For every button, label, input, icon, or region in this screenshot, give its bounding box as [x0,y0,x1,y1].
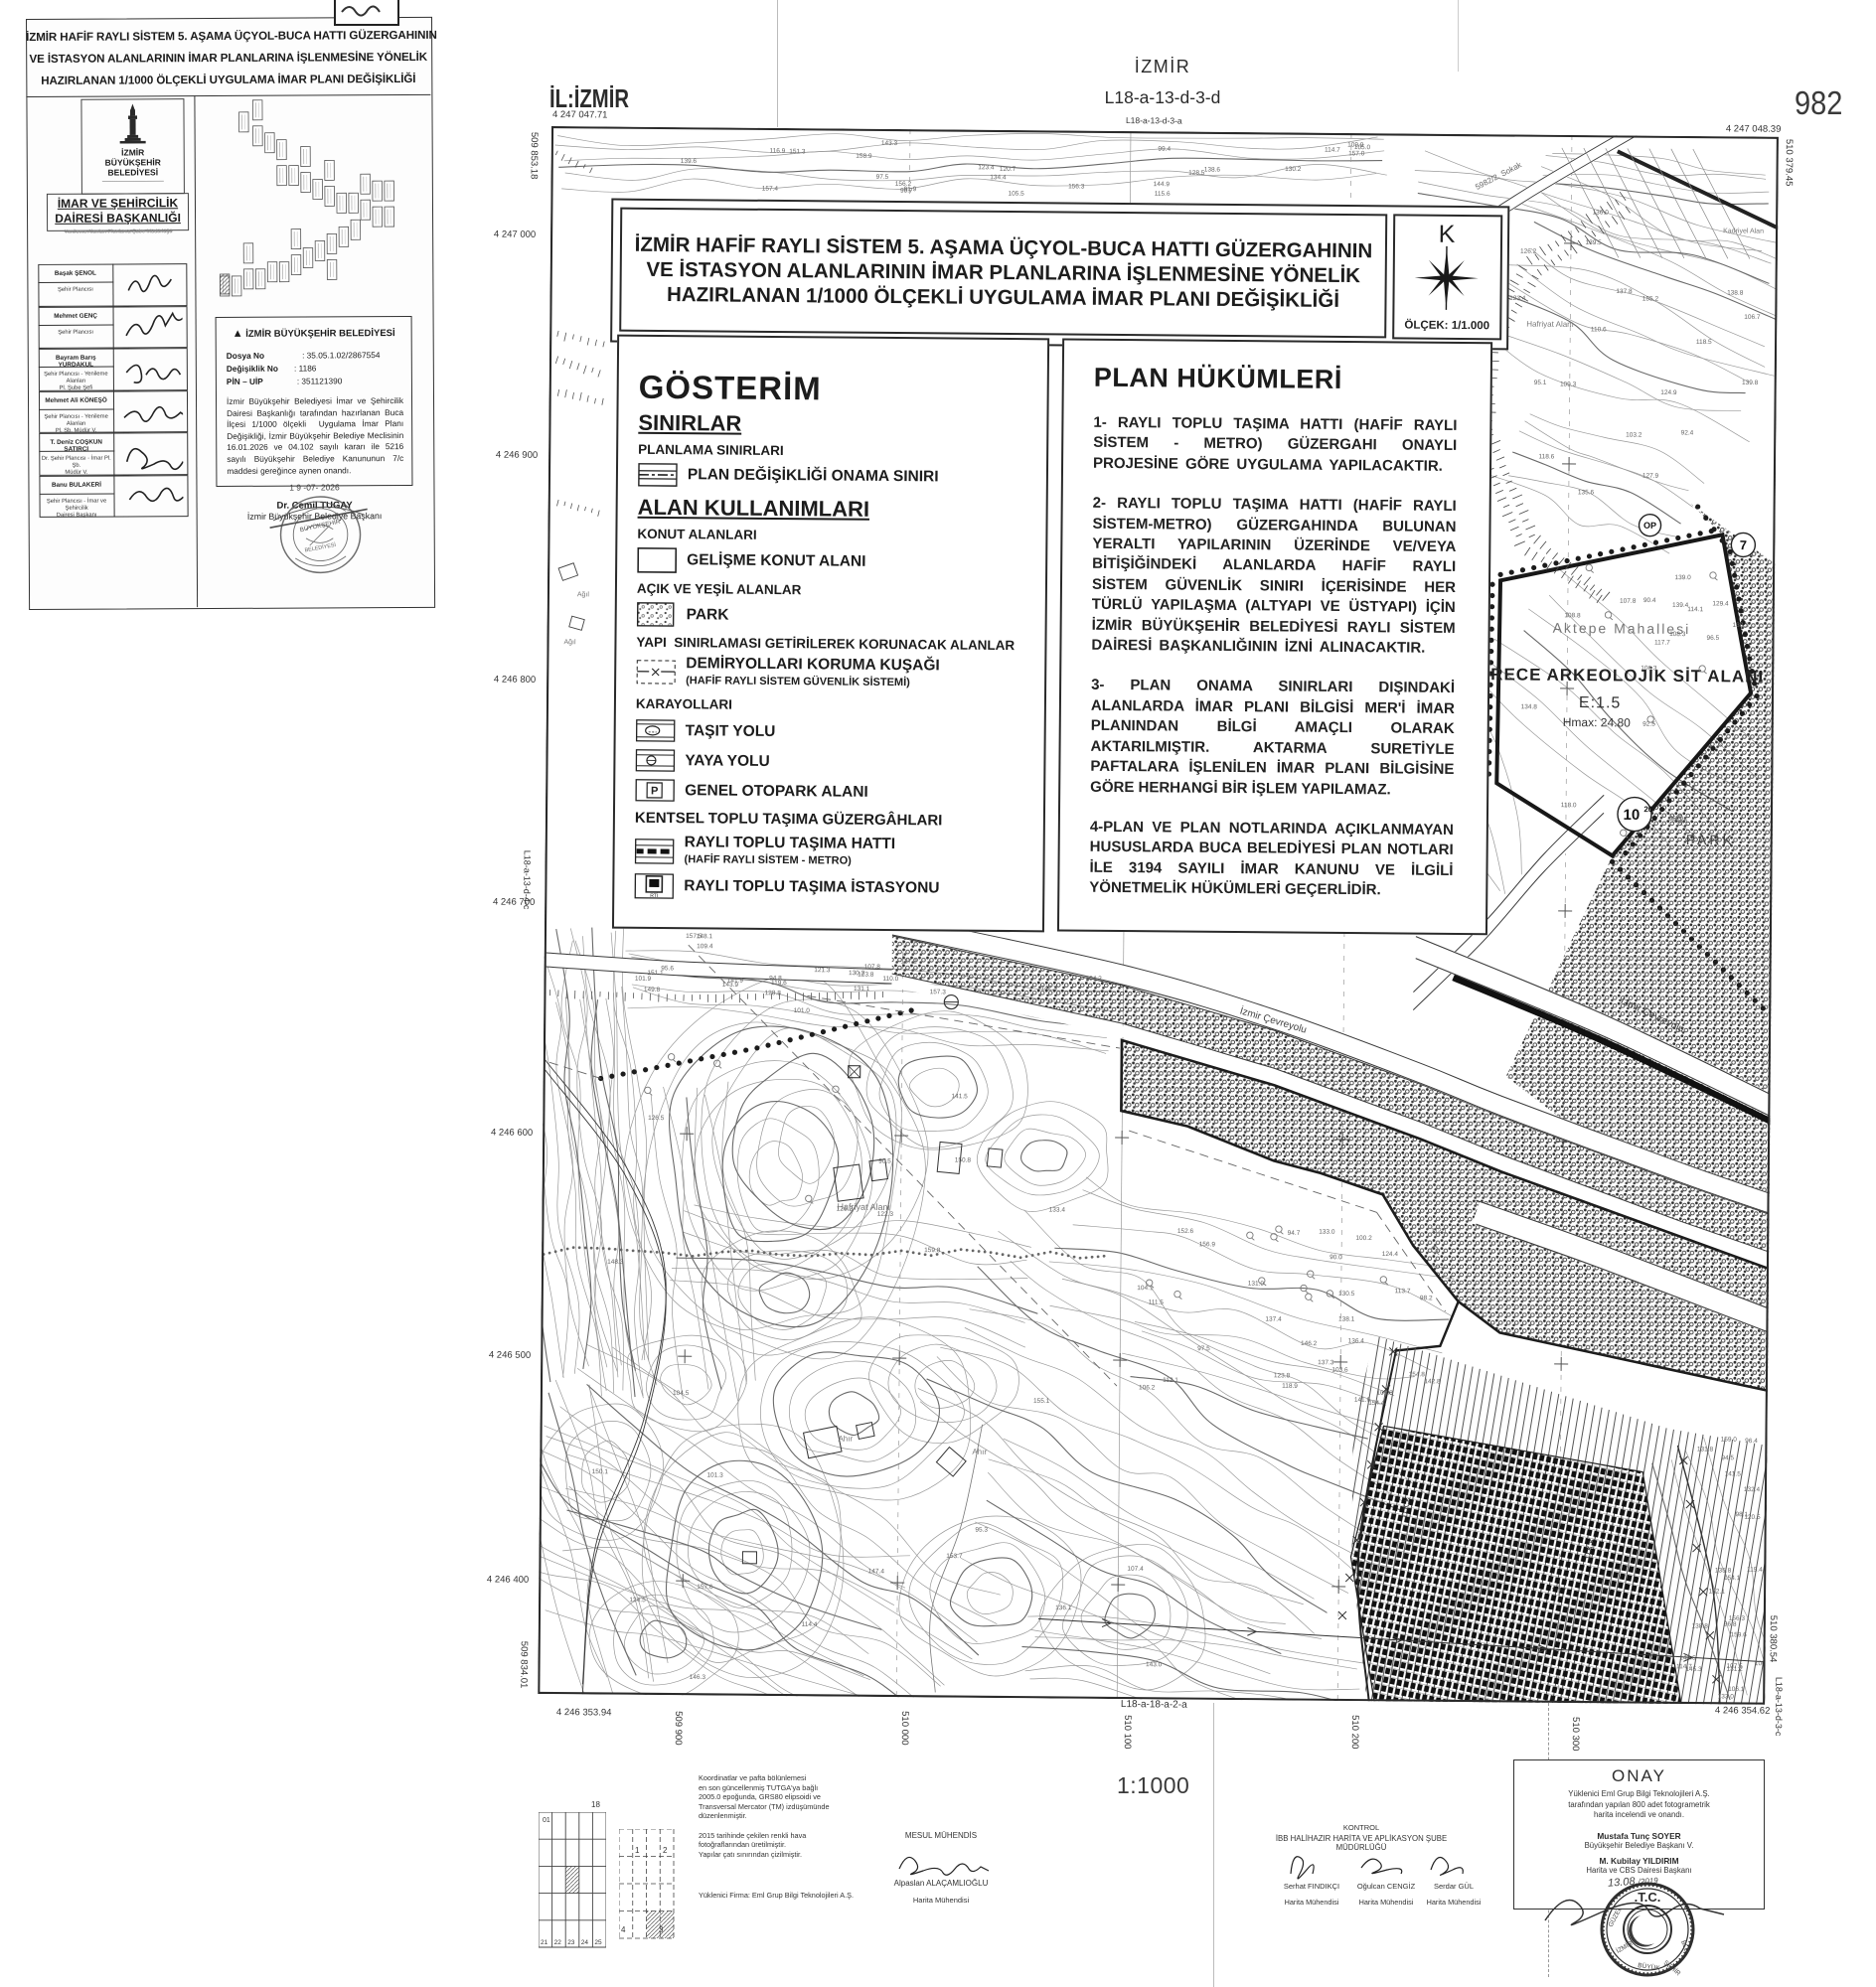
svg-text:157.3: 157.3 [930,989,947,995]
svg-text:136.0: 136.0 [1593,210,1610,217]
svg-text:109.9: 109.9 [1347,142,1364,149]
svg-text:139.6: 139.6 [681,158,698,165]
svg-text:123.4: 123.4 [978,164,995,171]
svg-text:122.3: 122.3 [877,1211,894,1218]
svg-text:95.3: 95.3 [975,1527,988,1534]
svg-text:153.7: 153.7 [946,1553,963,1560]
svg-text:.T.C.: .T.C. [1635,1890,1661,1905]
svg-text:157.0: 157.0 [1348,150,1365,157]
svg-text:136.4: 136.4 [1348,1338,1365,1345]
svg-text:138.8: 138.8 [1727,290,1744,297]
svg-text:135.8: 135.8 [1715,1567,1732,1574]
svg-text:137.3: 137.3 [1318,1359,1334,1366]
svg-text:21: 21 [541,1939,548,1946]
svg-text:154.8: 154.8 [1409,1371,1426,1378]
svg-text:01: 01 [543,1817,550,1824]
svg-text:90.4: 90.4 [1643,597,1656,604]
svg-text:137.8: 137.8 [1616,288,1633,295]
svg-text:2: 2 [663,1846,668,1855]
svg-text:107.8: 107.8 [864,964,881,971]
svg-text:123.4: 123.4 [1509,295,1526,302]
svg-text:135.6: 135.6 [1578,489,1595,496]
svg-text:133.0: 133.0 [1718,1693,1735,1700]
svg-text:137.2: 137.2 [900,958,917,965]
svg-text:106.3: 106.3 [1641,665,1657,672]
svg-text:148.3: 148.3 [607,1259,624,1266]
svg-text:147.4: 147.4 [868,1568,885,1575]
svg-text:117.7: 117.7 [1654,640,1670,647]
svg-text:109.4: 109.4 [697,943,713,950]
svg-text:114.4: 114.4 [802,1621,818,1628]
svg-text:109.8: 109.8 [1376,1390,1393,1397]
svg-text:RTİ: RTİ [650,892,658,899]
svg-text:138.8: 138.8 [1692,1623,1709,1630]
svg-text:156.3: 156.3 [1729,1615,1746,1622]
svg-text:124.5: 124.5 [629,1597,646,1604]
svg-text:100.2: 100.2 [1355,1235,1372,1242]
svg-text:138.6: 138.6 [1204,167,1221,174]
svg-text:118.0: 118.0 [1561,802,1577,809]
svg-text:BÜYÜK: BÜYÜK [1638,1961,1661,1972]
svg-text:10: 10 [1623,807,1640,824]
svg-text:106.2: 106.2 [1139,1384,1156,1391]
svg-text:104.2: 104.2 [1086,976,1103,983]
svg-text:139.0: 139.0 [1674,574,1691,581]
svg-text:121.3: 121.3 [814,967,831,974]
svg-text:OP: OP [1643,521,1656,531]
svg-text:129.4: 129.4 [1712,600,1729,607]
svg-text:114.7: 114.7 [1325,147,1340,154]
svg-text:103.6: 103.6 [1331,1367,1348,1374]
svg-text:143.0: 143.0 [1146,1661,1163,1668]
svg-text:159.6: 159.6 [1730,1631,1747,1638]
svg-text:131.1: 131.1 [854,986,870,993]
svg-text:112.1: 112.1 [1431,1228,1447,1235]
svg-text:151.1: 151.1 [647,970,664,977]
svg-text:114.1: 114.1 [1687,606,1703,613]
svg-text:109.3: 109.3 [1560,382,1577,388]
svg-text:134.4: 134.4 [990,174,1007,181]
svg-text:110.0: 110.0 [882,976,898,983]
svg-text:143.9: 143.9 [722,982,739,989]
svg-text:113.7: 113.7 [1395,1288,1411,1295]
svg-text:118.5: 118.5 [1696,339,1712,346]
svg-text:94.8: 94.8 [769,975,782,982]
svg-text:96.5: 96.5 [1707,635,1720,642]
svg-text:90.0: 90.0 [1329,1254,1342,1261]
svg-text:130.2: 130.2 [849,970,865,977]
svg-text:23: 23 [567,1939,575,1946]
svg-text:7: 7 [1740,537,1747,552]
svg-text:4: 4 [621,1925,626,1934]
svg-text:130.2: 130.2 [1285,166,1302,173]
svg-text:25: 25 [594,1939,602,1946]
svg-text:139.5: 139.5 [1585,239,1602,246]
svg-text:112.1: 112.1 [1163,1377,1178,1384]
svg-text:101.0: 101.0 [794,1007,811,1014]
svg-text:Ağıl: Ağıl [563,639,576,646]
svg-text:156.9: 156.9 [1199,1241,1216,1248]
svg-text:PARK: PARK [1686,832,1735,847]
svg-text:108.3: 108.3 [1669,631,1686,638]
svg-text:131.8: 131.8 [1697,1447,1714,1453]
svg-text:132.4: 132.4 [1744,1486,1761,1493]
svg-text:158.9: 158.9 [856,153,872,160]
svg-text:P: P [651,785,658,797]
svg-text:98.1: 98.1 [1736,1511,1749,1518]
svg-text:150.8: 150.8 [955,1156,972,1163]
svg-text:Kadriyel Alan: Kadriyel Alan [1723,228,1764,234]
svg-text:103.2: 103.2 [1626,432,1642,439]
svg-text:107.4: 107.4 [1127,1566,1144,1573]
svg-text:133.0: 133.0 [1319,1229,1335,1236]
svg-text:116.9: 116.9 [769,148,785,155]
svg-text:97.5: 97.5 [876,174,889,181]
svg-text:101.3: 101.3 [706,1472,723,1479]
svg-text:111.5: 111.5 [1149,1299,1165,1306]
svg-text:133.3: 133.3 [1733,622,1750,629]
svg-text:Ahır: Ahır [838,1435,853,1444]
svg-text:90.7: 90.7 [900,188,913,195]
svg-text:98.2: 98.2 [1420,1295,1433,1301]
svg-text:157.4: 157.4 [762,186,779,193]
svg-text:149.8: 149.8 [644,987,661,993]
svg-text:118.9: 118.9 [1282,1383,1298,1390]
svg-text:134.8: 134.8 [1521,703,1538,710]
svg-text:107.8: 107.8 [1620,598,1637,605]
svg-text:155.1: 155.1 [1033,1398,1050,1405]
svg-text:118.6: 118.6 [1539,453,1555,460]
svg-text:138.1: 138.1 [1338,1316,1355,1323]
svg-text:106.1: 106.1 [1728,1686,1745,1693]
svg-text:Hmax: 24.80: Hmax: 24.80 [1563,715,1631,730]
svg-text:123.8: 123.8 [1274,1372,1291,1379]
svg-text:136.1: 136.1 [1055,1605,1072,1611]
svg-text:155.2: 155.2 [1642,295,1659,302]
svg-text:K: K [1439,221,1456,248]
svg-text:137.4: 137.4 [1265,1316,1282,1323]
svg-text:139.4: 139.4 [1672,602,1689,609]
svg-text:143.3: 143.3 [881,140,898,147]
svg-text:156.3: 156.3 [1068,183,1085,190]
svg-text:141.5: 141.5 [1725,1470,1742,1477]
svg-text:20: 20 [1643,805,1653,814]
svg-text:BELEDİYESİ: BELEDİYESİ [304,541,337,554]
svg-text:159.0: 159.0 [1721,1437,1738,1444]
svg-text:95.1: 95.1 [1534,380,1547,386]
svg-text:146.2: 146.2 [1301,1340,1318,1347]
svg-text:141.5: 141.5 [951,1093,968,1100]
svg-text:94.7: 94.7 [1288,1230,1301,1237]
svg-text:RECE ARKEOLOJİK SİT ALANI: RECE ARKEOLOJİK SİT ALANI [1490,665,1764,686]
svg-text:3: 3 [659,1925,664,1934]
svg-text:97.5: 97.5 [1197,1345,1210,1352]
svg-text:114.7: 114.7 [1676,1663,1692,1670]
svg-text:Hafriyat Alanı: Hafriyat Alanı [1526,320,1574,329]
svg-text:139.8: 139.8 [1742,380,1759,386]
svg-text:115.6: 115.6 [1155,191,1171,198]
svg-text:Ahır: Ahır [972,1448,987,1456]
svg-text:157.6: 157.6 [697,1584,713,1591]
svg-text:128.8: 128.8 [765,990,782,996]
svg-text:146.3: 146.3 [690,1674,706,1681]
svg-text:124.4: 124.4 [1382,1251,1399,1258]
svg-text:130.5: 130.5 [1338,1291,1355,1298]
svg-text:126.2: 126.2 [1520,248,1537,255]
svg-text:115.4: 115.4 [1747,1567,1763,1574]
svg-text:126.5: 126.5 [648,1115,665,1122]
svg-text:24: 24 [581,1939,589,1946]
svg-text:E:1.5: E:1.5 [1579,694,1622,711]
svg-text:126.2: 126.2 [837,1206,854,1213]
svg-text:90.5: 90.5 [878,1158,891,1165]
svg-text:120.7: 120.7 [1000,166,1016,173]
svg-text:144.9: 144.9 [1154,181,1171,188]
svg-text:154.1: 154.1 [1724,1575,1741,1582]
svg-text:142.3: 142.3 [1041,985,1058,992]
svg-text:Ağıl: Ağıl [577,591,590,598]
svg-text:94.5: 94.5 [1721,1454,1734,1461]
svg-text:154.4: 154.4 [1368,1400,1385,1407]
svg-text:110.6: 110.6 [1591,326,1607,333]
svg-text:159.8: 159.8 [924,1247,941,1254]
svg-text:124.9: 124.9 [1660,389,1677,396]
svg-text:105.5: 105.5 [1008,191,1024,198]
svg-text:127.9: 127.9 [1642,473,1659,480]
svg-text:96.4: 96.4 [1745,1438,1758,1445]
svg-text:150.1: 150.1 [592,1468,609,1475]
svg-text:1: 1 [635,1846,640,1855]
svg-text:152.6: 152.6 [1177,1228,1194,1235]
svg-text:106.7: 106.7 [1744,314,1761,321]
svg-text:144.6: 144.6 [1679,1654,1696,1661]
svg-text:92.4: 92.4 [1681,429,1694,436]
svg-text:128.5: 128.5 [1188,170,1205,177]
svg-text:22: 22 [554,1939,562,1946]
svg-text:151.3: 151.3 [789,148,806,155]
svg-text:108.8: 108.8 [1564,612,1581,619]
svg-text:148.1: 148.1 [697,933,713,940]
svg-text:107.5: 107.5 [1726,1663,1743,1670]
svg-text:5982/2. Sokak: 5982/2. Sokak [1474,160,1523,192]
svg-text:133.4: 133.4 [1049,1207,1066,1214]
svg-text:104.5: 104.5 [673,1390,690,1397]
svg-text:142.8: 142.8 [1424,1378,1441,1385]
svg-text:122.1: 122.1 [1709,1589,1726,1596]
svg-text:99.4: 99.4 [1158,146,1171,153]
